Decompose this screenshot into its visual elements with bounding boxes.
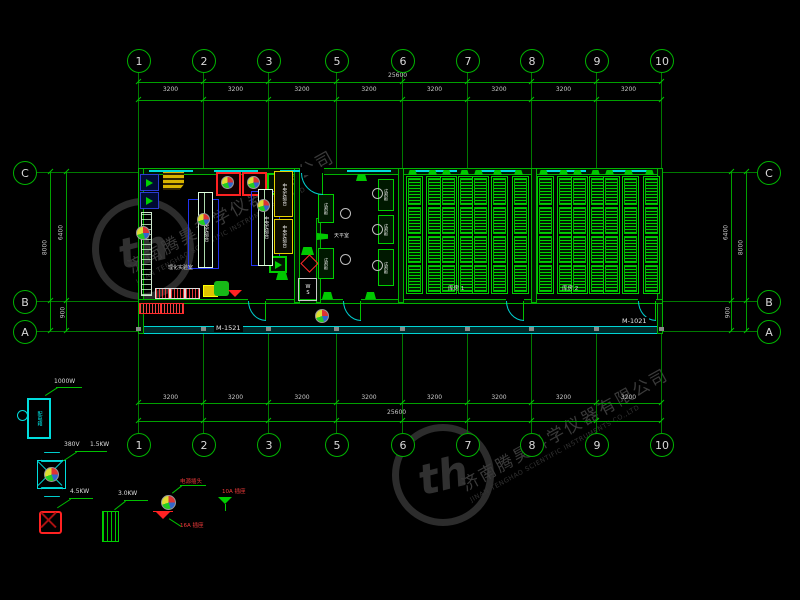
rack-shelf [408, 178, 421, 205]
dim-label: 3200 [617, 394, 641, 401]
schedule-note [160, 303, 184, 314]
partition-wall-3 [398, 168, 404, 303]
panel-power-label: 1000W [54, 378, 75, 385]
cabinet-label: 试剂柜 [384, 224, 388, 236]
wall-mullion [201, 327, 206, 331]
leader-line [69, 498, 93, 499]
window-segment [347, 170, 391, 172]
grid-bubble-bottom: 3 [257, 433, 281, 457]
dim-label: 3200 [423, 86, 447, 93]
rack-shelf [645, 265, 658, 292]
rack-shelf [605, 265, 618, 292]
stool [340, 254, 351, 265]
logo-stamp-icon [257, 199, 270, 212]
wall-mullion [266, 327, 271, 331]
wall-mullion [334, 327, 339, 331]
room-label: 天平室 [334, 232, 349, 239]
rack-shelf [624, 207, 637, 234]
rack-shelf [442, 178, 455, 205]
diffuser-icon [356, 174, 367, 181]
dim-label: 3200 [159, 86, 183, 93]
side-bench [141, 212, 152, 296]
under-bench-unit [155, 288, 170, 299]
dim-row: 900 [725, 302, 732, 324]
rack-shelf [493, 265, 506, 292]
rack-shelf [514, 265, 527, 292]
grid-bubble-bottom: 1 [127, 433, 151, 457]
wall-mullion [659, 327, 664, 331]
shaft-label: WS [305, 284, 310, 296]
logo-stamp-icon [221, 176, 234, 189]
dim-total: 25600 [388, 72, 407, 79]
grid-line [531, 71, 532, 168]
leader-line [75, 451, 107, 452]
grid-line [661, 71, 662, 168]
grid-bubble-top: 2 [192, 49, 216, 73]
room-label: 库房 1 [448, 284, 464, 292]
cabinet-label: 试剂柜 [384, 262, 388, 274]
storage-rack [440, 176, 457, 294]
rack-shelf [474, 178, 487, 205]
plug-label: 电源插头 [180, 477, 202, 485]
window-segment [149, 170, 193, 172]
watermark-company-en: JINAN TENGHAO SCIENTIFIC INSTRUMENTS CO.… [469, 383, 678, 503]
rack-shelf [605, 178, 618, 205]
dim-row: 900 [60, 302, 67, 324]
dim-label: 3200 [224, 86, 248, 93]
arrow-icon [146, 179, 153, 187]
leader-line [172, 485, 182, 493]
grid-bubble-top: 10 [650, 49, 674, 73]
rack-shelf [645, 178, 658, 205]
grid-bubble-bottom: 9 [585, 433, 609, 457]
equipment-green [214, 281, 229, 296]
door-leaf [523, 301, 524, 320]
wall-bench: 中央实验台 [274, 219, 293, 254]
grid-bubble-bottom: 6 [391, 433, 415, 457]
grid-bubble-top: 5 [325, 49, 349, 73]
socket16-label: 16A 插座 [180, 521, 204, 529]
wall-cabinet [140, 192, 159, 209]
storage-rack [571, 176, 588, 294]
logo-stamp-icon [44, 467, 59, 482]
socket16-symbol [156, 512, 170, 519]
cabinet-label: 试剂柜 [324, 203, 328, 215]
reagent-cabinet: 试剂柜 [318, 194, 334, 223]
bench-label: 中央实验台 [281, 183, 286, 206]
grid-bubble-left: A [13, 320, 37, 344]
rack-shelf [645, 207, 658, 234]
rack-shelf [474, 265, 487, 292]
rack-shelf [539, 236, 552, 263]
grid-bubble-bottom: 10 [650, 433, 674, 457]
rack-shelf [408, 236, 421, 263]
panel-label: 配电箱 [37, 411, 42, 426]
grid-bubble-bottom: 8 [520, 433, 544, 457]
diffuser-icon [301, 247, 314, 255]
diffuser-icon [317, 233, 328, 240]
socket10-symbol [218, 497, 232, 504]
dim-label: 3200 [224, 394, 248, 401]
grid-line [268, 71, 269, 168]
wall-mullion [594, 327, 599, 331]
stool [340, 208, 351, 219]
rack-shelf [539, 265, 552, 292]
door-leaf [265, 301, 266, 320]
rack-shelf [408, 207, 421, 234]
voltage-label: 380V [64, 441, 80, 448]
diffuser-icon [276, 272, 288, 280]
grid-bubble-left: C [13, 161, 37, 185]
watermark-text: 济南腾昊科学仪器有限公司 JINAN TENGHAO SCIENTIFIC IN… [456, 361, 677, 504]
rack-shelf [408, 265, 421, 292]
grid-bubble-top: 1 [127, 49, 151, 73]
room-label: 理化实验室 [168, 264, 193, 271]
wall-bench: 中央实验台 [274, 171, 293, 217]
diffuser-icon [365, 292, 376, 299]
rack-shelf [624, 178, 637, 205]
spec-note [163, 172, 184, 190]
rack-shelf [474, 207, 487, 234]
rack-shelf [573, 207, 586, 234]
cabinet-label: 试剂柜 [384, 189, 388, 201]
dim-label: 3200 [487, 394, 511, 401]
storage-rack [491, 176, 508, 294]
power-label: 4.5KW [70, 488, 89, 495]
rack-shelf [442, 207, 455, 234]
dim-label: 3200 [552, 86, 576, 93]
power-label: 3.0KW [118, 490, 137, 497]
socket10-label: 10A 插座 [222, 487, 246, 495]
dim-label: 3200 [357, 86, 381, 93]
rack-shelf [442, 236, 455, 263]
grid-line [467, 71, 468, 168]
transformer-trapezoid [41, 487, 63, 497]
grid-bubble-bottom: 2 [192, 433, 216, 457]
under-bench-unit [170, 288, 185, 299]
grid-bubble-top: 7 [456, 49, 480, 73]
wall-cabinet [140, 174, 159, 191]
rack-shelf [645, 236, 658, 263]
grid-line [596, 71, 597, 168]
grid-bubble-right: A [757, 320, 781, 344]
rack-shelf [573, 236, 586, 263]
leader-line [114, 501, 126, 510]
shaft-ws: WS [298, 278, 317, 301]
storage-rack [472, 176, 489, 294]
leader-line [45, 387, 58, 396]
under-bench-unit [185, 288, 200, 299]
door-leaf [322, 173, 323, 194]
grid-line [402, 71, 403, 168]
wall-mullion [465, 327, 470, 331]
cabinet-label: 试剂柜 [324, 258, 328, 270]
power-label: 1.5KW [90, 441, 109, 448]
door-swing-arc [506, 301, 524, 321]
sink-symbol [228, 290, 242, 297]
rack-shelf [514, 207, 527, 234]
leader-line [57, 499, 71, 509]
arrow-icon [275, 261, 282, 269]
leader-line [180, 485, 206, 486]
grid-bubble-bottom: 7 [456, 433, 480, 457]
stool [372, 188, 383, 199]
wall-mullion [529, 327, 534, 331]
dim-line [50, 172, 51, 331]
stool [372, 224, 383, 235]
bench-label: 中央实验台 [263, 216, 268, 239]
rack-shelf [624, 265, 637, 292]
rack-shelf [493, 178, 506, 205]
dim-row-total: 8000 [738, 237, 745, 259]
wall-mullion [400, 327, 405, 331]
storage-rack [603, 176, 620, 294]
leader-line [56, 387, 82, 388]
bench-label: 中央实验台 [281, 225, 286, 248]
grid-bubble-right: B [757, 290, 781, 314]
rack-shelf [514, 236, 527, 263]
dim-label: 3200 [290, 394, 314, 401]
room-label: 库房 2 [562, 284, 578, 292]
dim-row: 6400 [58, 222, 65, 244]
watermark-company-cn: 济南腾昊科学仪器有限公司 [456, 361, 673, 496]
arrow-icon [146, 197, 153, 205]
door-mark: M-1521 [214, 324, 243, 332]
storage-rack [512, 176, 529, 294]
diffuser-icon [322, 292, 333, 299]
dim-label: 3200 [487, 86, 511, 93]
dim-label: 3200 [357, 394, 381, 401]
logo-stamp-icon [247, 176, 260, 189]
rack-shelf [605, 207, 618, 234]
grid-bubble-top: 8 [520, 49, 544, 73]
grid-bubble-top: 3 [257, 49, 281, 73]
socket10-stem [225, 504, 226, 511]
stool [372, 260, 383, 271]
grid-bubble-top: 9 [585, 49, 609, 73]
rack-shelf [605, 236, 618, 263]
storage-rack [622, 176, 639, 294]
storage-rack [643, 176, 660, 294]
rack-shelf [474, 236, 487, 263]
dim-row-total: 8000 [42, 237, 49, 259]
rack-shelf [493, 236, 506, 263]
heater-symbol [102, 511, 119, 542]
dim-total: 25600 [387, 409, 406, 416]
rack-shelf [514, 178, 527, 205]
leader-line [63, 452, 77, 462]
dim-label: 3200 [290, 86, 314, 93]
cad-floorplan-canvas: th 济南腾昊科学仪器有限公司 JINAN TENGHAO SCIENTIFIC… [0, 0, 800, 600]
schedule-note [139, 303, 161, 314]
dim-row: 6400 [723, 222, 730, 244]
grid-bubble-bottom: 5 [325, 433, 349, 457]
plug-symbol [161, 495, 176, 510]
rack-shelf [539, 178, 552, 205]
reagent-cabinet: 试剂柜 [318, 248, 334, 279]
dim-line [746, 172, 747, 331]
grid-line [336, 71, 337, 168]
door-swing-arc [248, 301, 266, 321]
logo-stamp-icon [197, 213, 210, 226]
grid-line [138, 71, 139, 168]
rack-shelf [493, 207, 506, 234]
wall-mullion [136, 327, 141, 331]
dim-label: 3200 [159, 394, 183, 401]
storage-rack [537, 176, 554, 294]
logo-stamp-icon [136, 226, 150, 240]
door-mark: M-1021 [620, 317, 649, 325]
leader-line [124, 500, 148, 501]
dim-label: 3200 [423, 394, 447, 401]
dim-label: 3200 [552, 394, 576, 401]
grid-bubble-left: B [13, 290, 37, 314]
legend-panel-box: 配电箱 [27, 398, 51, 439]
central-bench: 中央实验台 [198, 192, 213, 268]
storage-rack [406, 176, 423, 294]
rack-shelf [539, 207, 552, 234]
grid-bubble-right: C [757, 161, 781, 185]
grid-line [203, 71, 204, 168]
door-swing-arc [343, 301, 361, 321]
door-leaf [655, 301, 656, 320]
rack-shelf [624, 236, 637, 263]
door-leaf [360, 301, 361, 320]
grid-bubble-top: 6 [391, 49, 415, 73]
rack-shelf [573, 178, 586, 205]
logo-stamp-icon [315, 309, 329, 323]
dim-label: 3200 [617, 86, 641, 93]
